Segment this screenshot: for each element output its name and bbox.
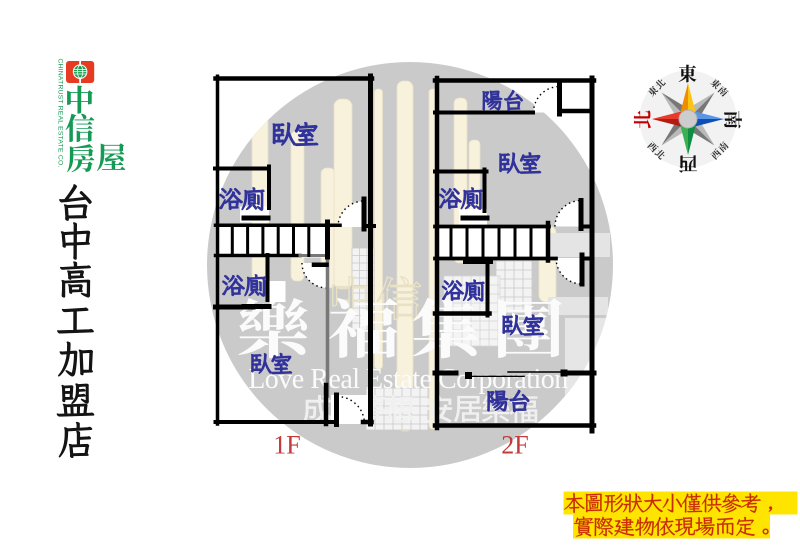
- svg-text:CHINATRUST REAL ESTATE CO.: CHINATRUST REAL ESTATE CO.: [57, 58, 64, 167]
- svg-text:1F: 1F: [273, 431, 300, 460]
- svg-text:Love Real Estate Corporation: Love Real Estate Corporation: [248, 364, 568, 395]
- svg-text:2F: 2F: [501, 431, 528, 460]
